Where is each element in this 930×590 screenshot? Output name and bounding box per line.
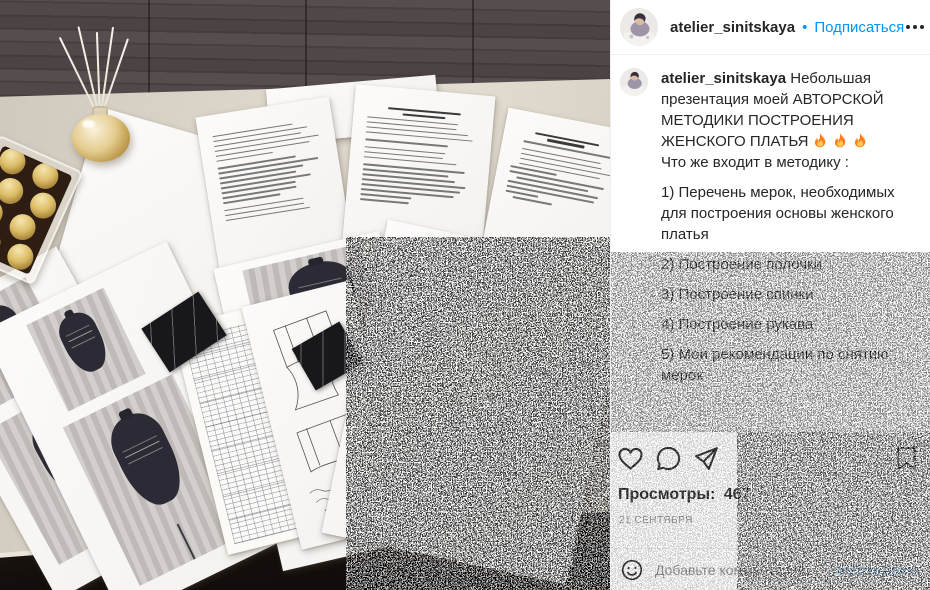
audio-muted-icon[interactable] (556, 553, 576, 573)
caption-text: atelier_sinitskaya Небольшая презентация… (661, 68, 919, 431)
dress-form (102, 404, 192, 513)
avatar-image (620, 68, 648, 96)
comment-input[interactable] (655, 561, 820, 579)
caption-paragraph: 5) Мои рекомендации по снятию мерок (661, 344, 919, 386)
heart-icon (617, 445, 644, 472)
caption-paragraph: 3) Построение спинки (661, 284, 919, 305)
avatar[interactable] (620, 68, 648, 96)
instagram-post-view: схема A СХЕМА B СХЕМА B (0, 0, 930, 590)
more-options-button[interactable] (904, 21, 926, 33)
views-value: 467 (724, 486, 751, 503)
comment-composer: Опубликовать (611, 548, 930, 590)
follow-button[interactable]: Подписаться (814, 19, 904, 36)
share-icon (693, 445, 720, 472)
save-button[interactable] (893, 445, 920, 472)
emoji-picker-button[interactable] (620, 558, 644, 582)
views-count: Просмотры: 467 (618, 486, 754, 504)
chocolate-ball (0, 174, 27, 208)
plank-seam (472, 0, 474, 104)
chocolate-ball (0, 145, 30, 178)
caption-section: atelier_sinitskaya Небольшая презентация… (611, 55, 930, 432)
chocolate-ball (0, 225, 5, 259)
fire-emoji-icon (833, 133, 848, 149)
post-date: 21 СЕНТЯБРЯ (619, 515, 693, 526)
printed-heading-line (403, 113, 446, 119)
post-header: atelier_sinitskaya • Подписаться (611, 0, 930, 55)
printed-text-line (365, 138, 448, 147)
like-button[interactable] (617, 445, 644, 472)
views-label: Просмотры: (618, 486, 720, 503)
caption-username[interactable]: atelier_sinitskaya (661, 70, 790, 87)
post-media[interactable]: схема A СХЕМА B СХЕМА B (0, 0, 610, 590)
plank-seam (148, 0, 150, 104)
dress-form (53, 306, 114, 378)
printed-text-line (509, 170, 604, 190)
diffuser-bottle (72, 114, 130, 162)
comment-button[interactable] (655, 445, 682, 472)
fire-emoji-row (813, 133, 869, 150)
username-link[interactable]: atelier_sinitskaya (670, 19, 795, 36)
fire-emoji-icon (813, 133, 828, 149)
avatar[interactable] (620, 8, 658, 46)
chocolate-ball (28, 159, 62, 193)
publish-button[interactable]: Опубликовать (828, 562, 920, 578)
fire-emoji-icon (853, 133, 868, 149)
caption-paragraph: 2) Построение полочки (661, 254, 919, 275)
printed-text-line (360, 198, 409, 204)
caption-paragraph: 4) Построение рукава (661, 314, 919, 335)
action-bar (611, 432, 930, 486)
comment-icon (655, 445, 682, 472)
bookmark-icon (893, 445, 920, 472)
dress-form-photo (26, 288, 145, 412)
smiley-icon (620, 558, 644, 582)
caption-paragraph: 1) Перечень мерок, необходимых для постр… (661, 182, 919, 245)
separator-dot: • (802, 19, 807, 36)
printed-text-line (366, 126, 468, 137)
share-button[interactable] (693, 445, 720, 472)
chocolate-ball (3, 240, 37, 274)
avatar-image (620, 8, 658, 46)
caption-paragraphs: Что же входит в методику :1) Перечень ме… (661, 152, 919, 386)
printed-text-line (512, 196, 552, 205)
post-detail-panel: atelier_sinitskaya • Подписаться atelier… (610, 0, 930, 590)
caption-paragraph: Что же входит в методику : (661, 152, 919, 173)
